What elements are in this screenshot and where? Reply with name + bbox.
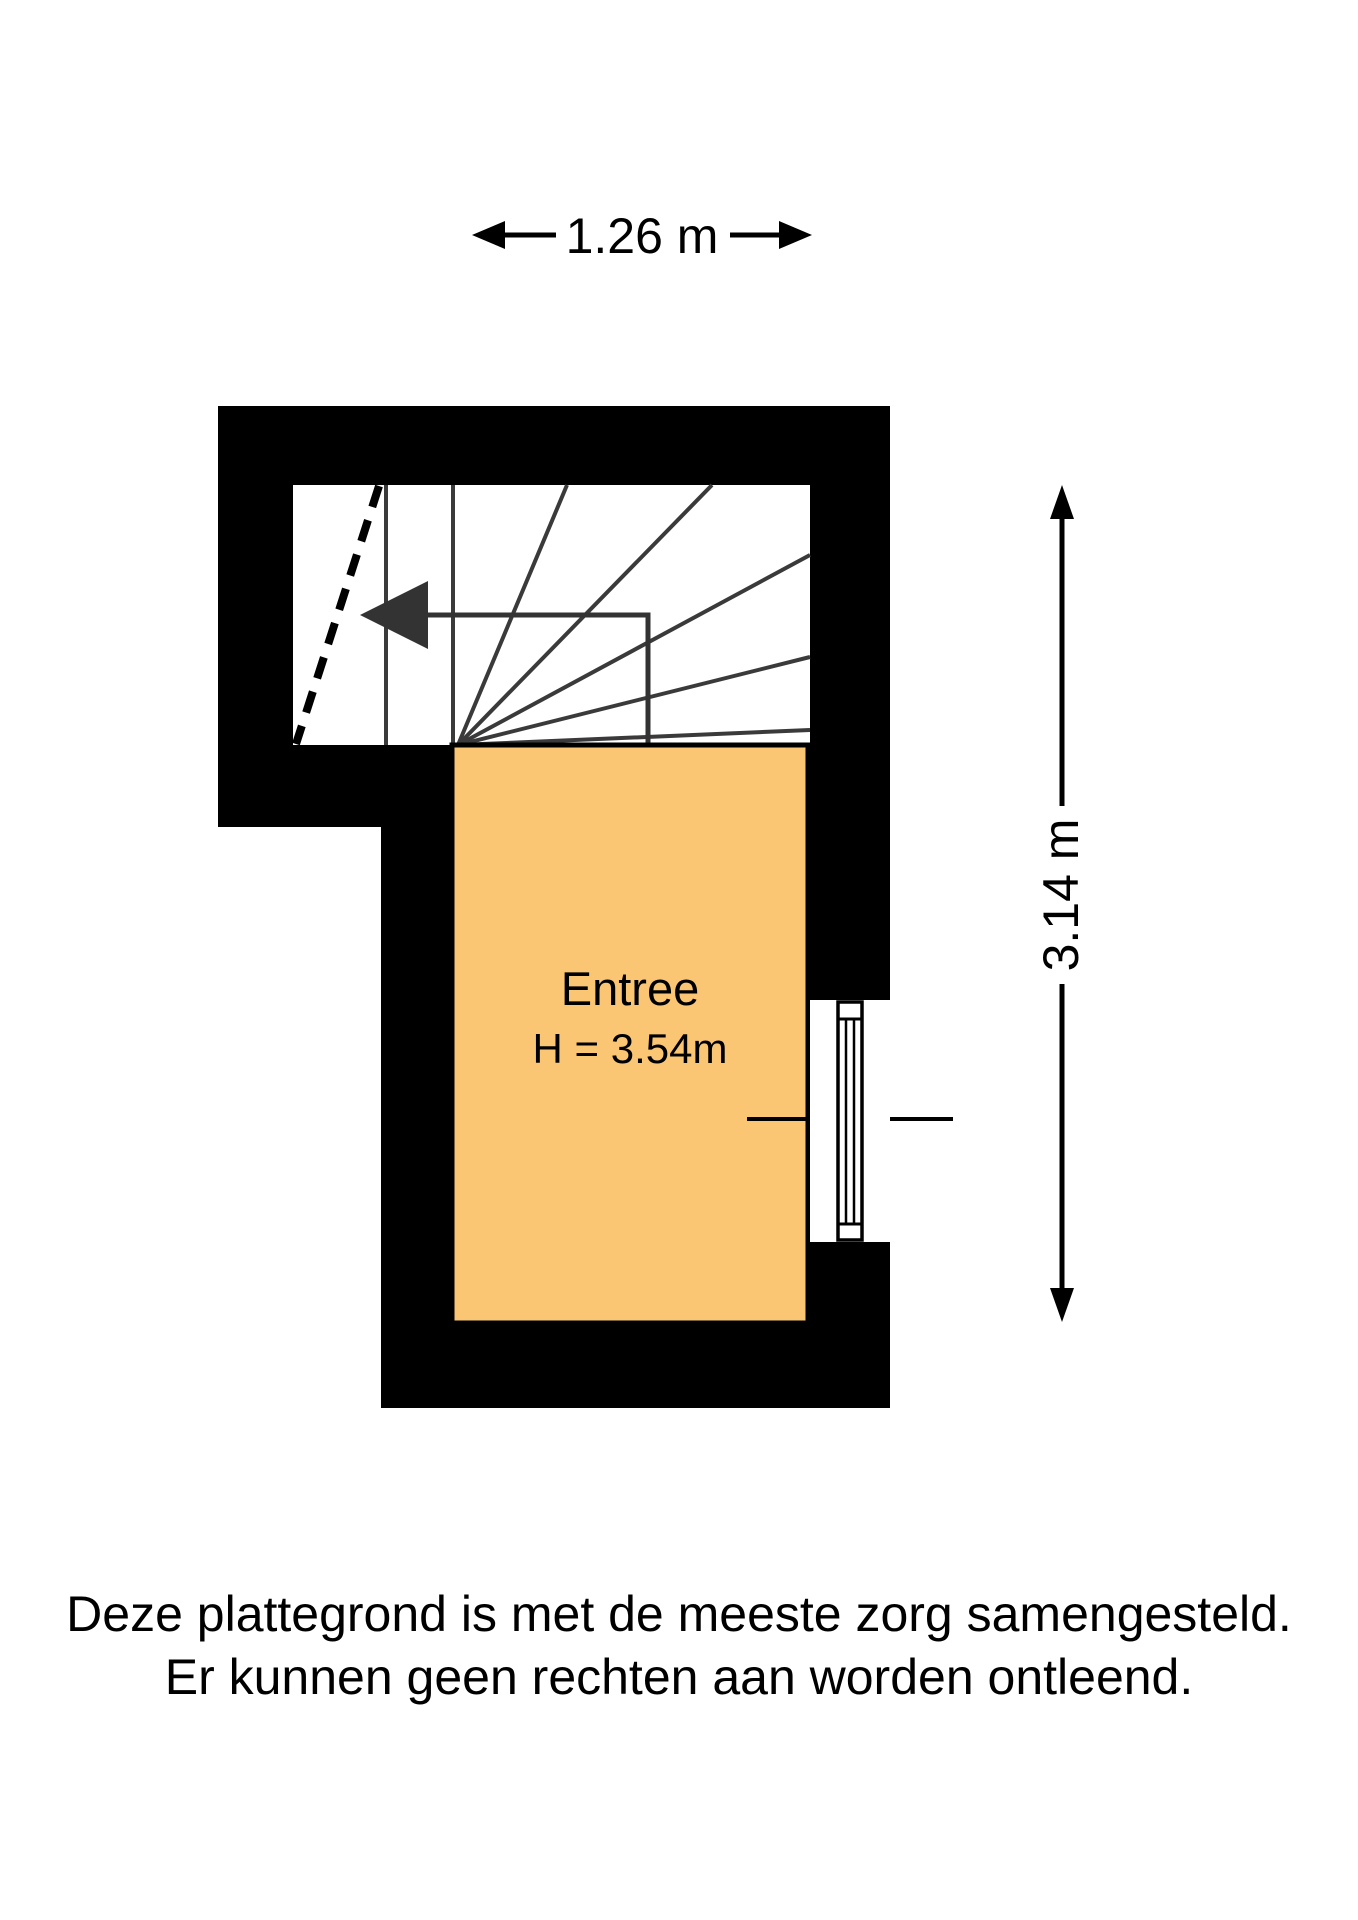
wall-right-upper [810, 485, 890, 1000]
dim-arrowhead-left [472, 221, 505, 249]
window-frame [838, 1002, 862, 1240]
stairwell [293, 485, 810, 745]
height-dimension-label: 3.14 m [1033, 819, 1089, 972]
wall-right-lower [810, 1242, 890, 1408]
dim-arrowhead-right [779, 221, 812, 249]
dim-arrowhead-bottom [1050, 1288, 1074, 1322]
room-entree-label: Entree [561, 962, 699, 1015]
height-dimension: 3.14 m [1033, 485, 1089, 1322]
width-dimension: 1.26 m [472, 208, 812, 264]
disclaimer: Deze plattegrond is met de meeste zorg s… [66, 1586, 1292, 1705]
floor-plan-drawing: 1.26 m 3.14 m [0, 0, 1358, 1920]
wall-top [218, 406, 890, 485]
room-entree-height-label: H = 3.54m [533, 1025, 728, 1072]
room-entree: Entree H = 3.54m [452, 745, 808, 1323]
disclaimer-line-1: Deze plattegrond is met de meeste zorg s… [66, 1586, 1292, 1642]
wall-left-step [218, 745, 455, 827]
dim-arrowhead-top [1050, 485, 1074, 519]
floor-plan-page: 1.26 m 3.14 m [0, 0, 1358, 1920]
width-dimension-label: 1.26 m [566, 208, 719, 264]
wall-left-lower [381, 827, 455, 1408]
disclaimer-line-2: Er kunnen geen rechten aan worden ontlee… [165, 1649, 1194, 1705]
